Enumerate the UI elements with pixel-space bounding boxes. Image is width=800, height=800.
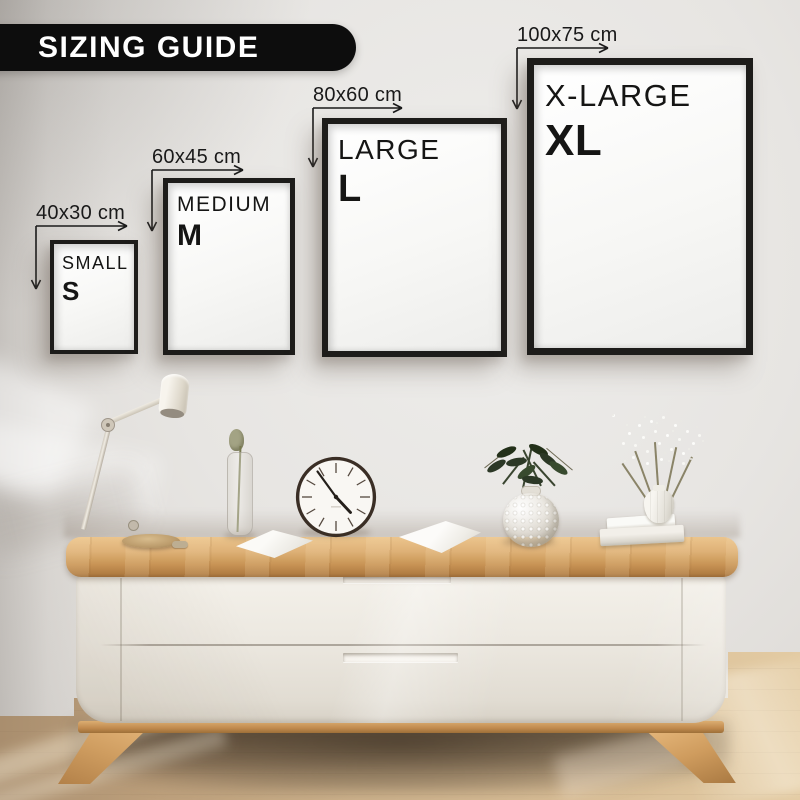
banner-title: SIZING GUIDE xyxy=(38,31,259,65)
leaf xyxy=(547,459,569,476)
frame-mat: MEDIUM M xyxy=(168,183,290,350)
desk-lamp-joint xyxy=(101,418,115,432)
cabinet-panel-seam xyxy=(681,578,683,721)
desk-lamp-head xyxy=(158,373,190,420)
size-name-label: X-LARGE xyxy=(545,78,746,114)
poster-frame-large: LARGE L xyxy=(322,118,507,357)
flower-stem xyxy=(670,457,692,501)
cabinet-panel-seam xyxy=(120,578,122,721)
size-name-label: LARGE xyxy=(338,134,501,166)
glass-bud-vase xyxy=(227,452,253,536)
poster-frame-small: SMALL S xyxy=(50,240,138,354)
drawer-handle-top xyxy=(343,576,451,583)
size-name-label: MEDIUM xyxy=(177,193,290,217)
frame-mat: X-LARGE XL xyxy=(534,65,746,348)
wall-clock xyxy=(294,455,378,539)
frame-mat: SMALL S xyxy=(54,244,134,350)
flower-blossoms xyxy=(612,414,614,416)
size-code-label: M xyxy=(177,219,290,253)
sizing-guide-banner: SIZING GUIDE xyxy=(0,24,356,71)
poster-frame-medium: MEDIUM M xyxy=(163,178,295,355)
poster-frame-xlarge: X-LARGE XL xyxy=(527,58,753,355)
cabinet-body xyxy=(76,574,726,723)
hobnail-glass-vase xyxy=(503,493,559,547)
leaf xyxy=(522,475,544,484)
flower-bud xyxy=(229,429,244,451)
size-code-label: XL xyxy=(545,116,746,166)
frame-mat: LARGE L xyxy=(328,124,501,351)
small-trinket xyxy=(172,541,188,548)
cabinet-light-overlay xyxy=(76,574,726,723)
desk-lamp-joint xyxy=(128,520,139,531)
drawer-handle-bottom xyxy=(343,653,458,662)
size-code-label: S xyxy=(62,276,134,307)
sizing-guide-image: SIZING GUIDE 40x30 cm 60x45 cm 80x60 cm … xyxy=(0,0,800,800)
flower-stem xyxy=(622,463,648,500)
leaf xyxy=(486,457,508,476)
size-name-label: SMALL xyxy=(62,253,134,274)
drawer-divider xyxy=(100,644,706,646)
size-code-label: L xyxy=(338,168,501,211)
